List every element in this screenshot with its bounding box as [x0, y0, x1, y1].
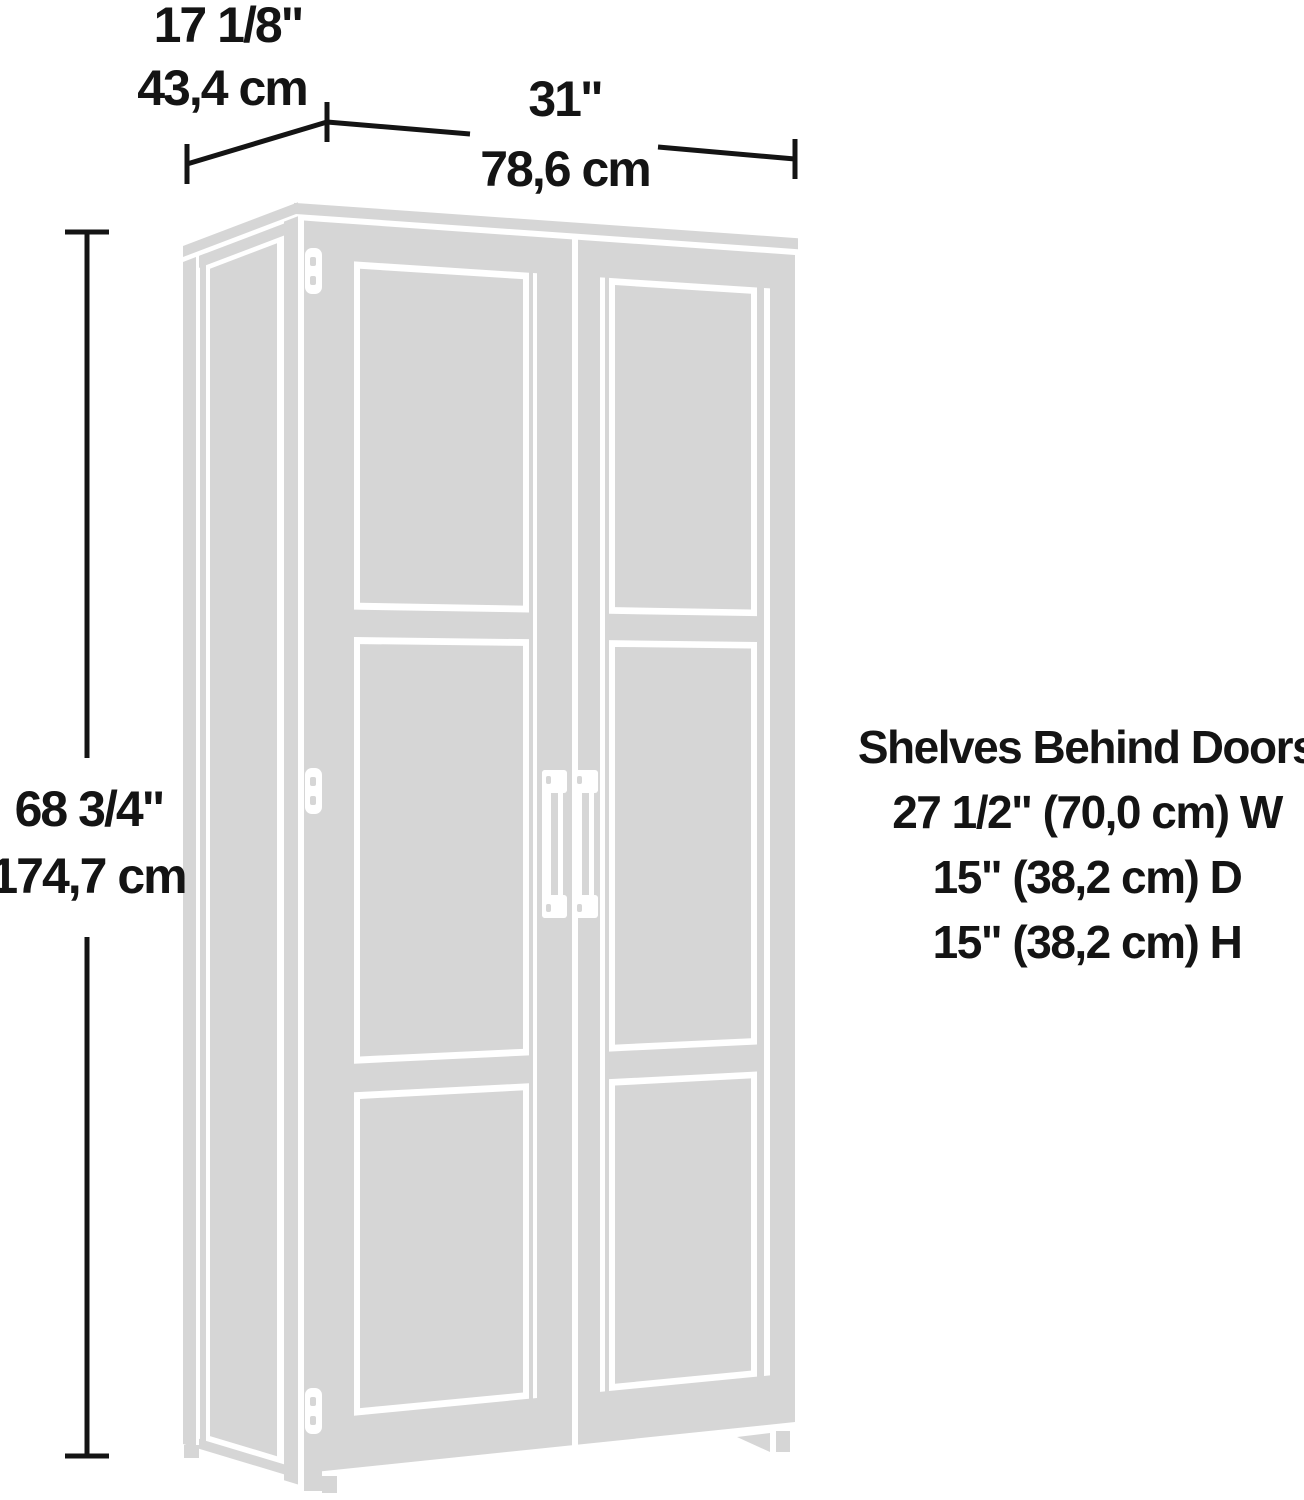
height-inches-label: 68 3/4" — [15, 781, 164, 837]
height-cm-label: 174,7 cm — [0, 848, 186, 904]
shelf-note-line-h: 15" (38,2 cm) H — [933, 916, 1242, 968]
width-dimension-line-right — [658, 147, 795, 159]
depth-inches-label: 17 1/8" — [154, 0, 303, 53]
width-cm-label: 78,6 cm — [480, 141, 649, 197]
cabinet-drawing — [183, 202, 798, 1493]
product-dimension-page: 17 1/8" 43,4 cm 31" 78,6 cm 68 3/4" 174,… — [0, 0, 1304, 1500]
depth-cm-label: 43,4 cm — [137, 60, 306, 116]
dimension-diagram: 17 1/8" 43,4 cm 31" 78,6 cm 68 3/4" 174,… — [0, 0, 1304, 1500]
depth-dimension-line — [187, 122, 327, 164]
shelf-note-line-d: 15" (38,2 cm) D — [933, 851, 1242, 903]
shelf-note-line-w: 27 1/2" (70,0 cm) W — [892, 786, 1284, 838]
shelf-note: Shelves Behind Doors 27 1/2" (70,0 cm) W… — [858, 721, 1304, 968]
width-inches-label: 31" — [528, 71, 601, 127]
width-dimension-line-left — [327, 122, 470, 134]
shelf-note-title: Shelves Behind Doors — [858, 721, 1304, 773]
